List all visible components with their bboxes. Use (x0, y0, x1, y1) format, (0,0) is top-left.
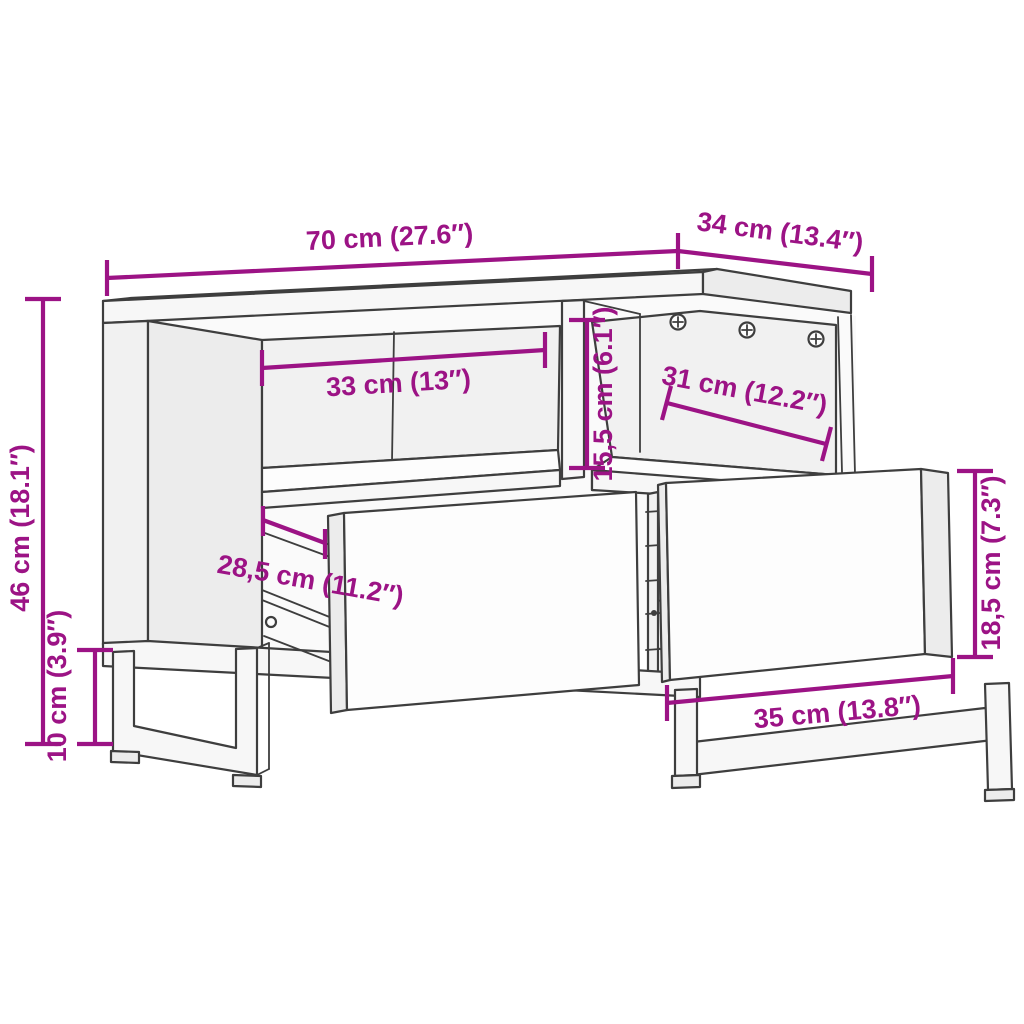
slide-screw (651, 610, 657, 616)
slide-hole (646, 580, 660, 581)
drawer-slide-roller (266, 617, 276, 627)
right-drawer-front (658, 469, 952, 682)
furniture-dimension-diagram: 70 cm (27.6″) 34 cm (13.4″) 46 cm (18.1″… (0, 0, 1024, 1024)
slide-hole (646, 649, 660, 650)
dimension-line (107, 251, 678, 278)
slide-column (648, 492, 658, 687)
right-drawer-front-face (666, 469, 925, 680)
slide-hole (646, 545, 660, 546)
dimension-label: 34 cm (13.4″) (695, 206, 865, 258)
divider-front-edge (562, 300, 584, 479)
left-side-panel (103, 321, 148, 645)
dimension-label: 10 cm (3.9″) (42, 610, 72, 763)
screw-icon (740, 323, 755, 338)
screw-icon (809, 332, 824, 347)
right-leg-foot (672, 775, 700, 788)
left-side-panel-inner-face (148, 321, 262, 668)
dimension-label: 15,5 cm (6.1″) (588, 306, 618, 481)
right-leg-rear-post (985, 683, 1012, 790)
dimension-drawer-front-height: 18,5 cm (7.3″) (957, 471, 1006, 657)
product-image: 70 cm (27.6″) 34 cm (13.4″) 46 cm (18.1″… (0, 0, 1024, 1024)
screw-icon (671, 315, 686, 330)
dimension-label: 18,5 cm (7.3″) (976, 475, 1006, 650)
right-leg-foot (985, 789, 1014, 801)
left-leg-foot (233, 775, 261, 787)
dimension-label: 46 cm (18.1″) (5, 444, 35, 612)
left-leg-foot (111, 751, 139, 763)
dimension-label: 70 cm (27.6″) (305, 218, 474, 256)
right-drawer-front-edge-face (921, 469, 952, 657)
